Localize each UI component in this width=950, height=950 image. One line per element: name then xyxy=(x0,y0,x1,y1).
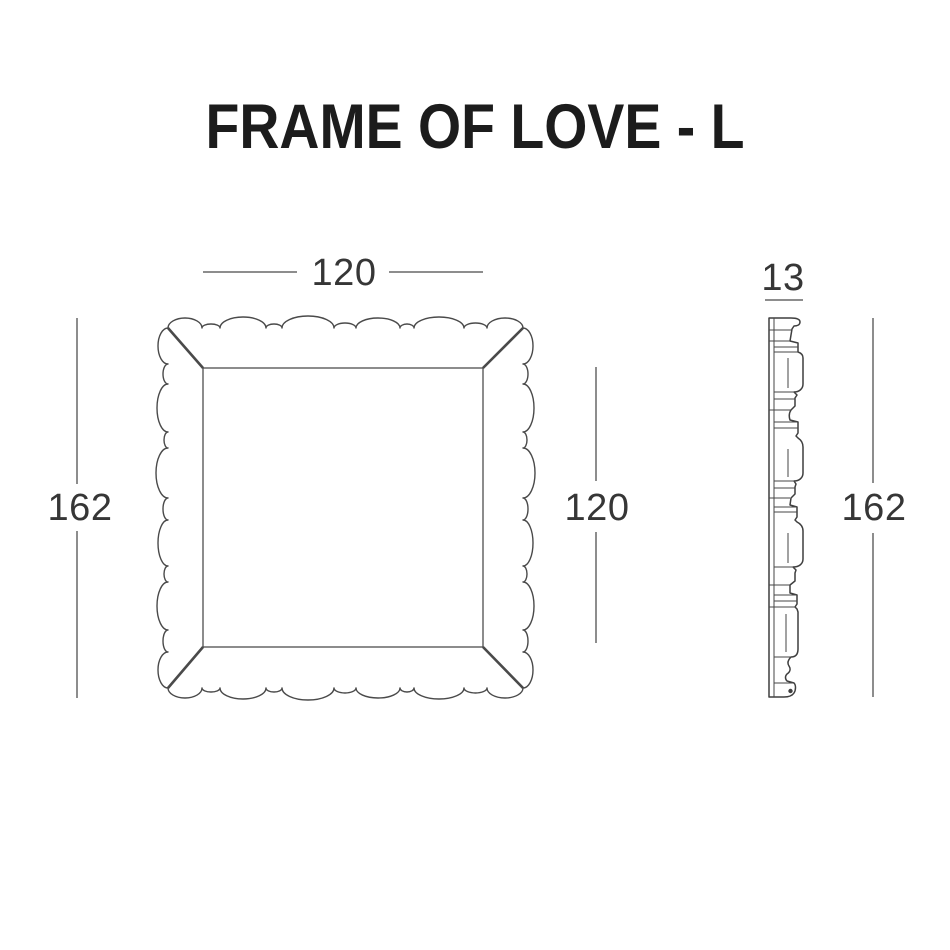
dim-label-side-top-depth: 13 xyxy=(733,259,833,297)
dim-label-front-top-width: 120 xyxy=(294,254,394,292)
dim-line-front-left-top-segment xyxy=(76,318,78,484)
dim-line-front-top-right-segment xyxy=(389,271,483,273)
dim-label-side-right-height: 162 xyxy=(824,489,924,527)
dim-line-front-top-left-segment xyxy=(203,271,297,273)
dim-line-side-right-top-segment xyxy=(872,318,874,483)
dim-line-front-right-top-segment xyxy=(595,367,597,481)
dim-line-front-right-bottom-segment xyxy=(595,532,597,643)
dim-line-front-left-bottom-segment xyxy=(76,531,78,698)
side-view-drawing xyxy=(755,310,815,705)
side-profile-dot-detail xyxy=(788,689,792,693)
dim-line-side-top-segment xyxy=(765,299,803,301)
frame-dimension-drawing-page: FRAME OF LOVE - L 120 162 120 13 162 xyxy=(0,0,950,950)
front-view-drawing xyxy=(140,300,560,715)
dim-label-front-right-inner-height: 120 xyxy=(547,489,647,527)
dim-line-side-right-bottom-segment xyxy=(872,533,874,697)
page-title: FRAME OF LOVE - L xyxy=(57,96,893,159)
dim-label-front-left-height: 162 xyxy=(30,489,130,527)
frame-inner-opening xyxy=(203,368,483,647)
